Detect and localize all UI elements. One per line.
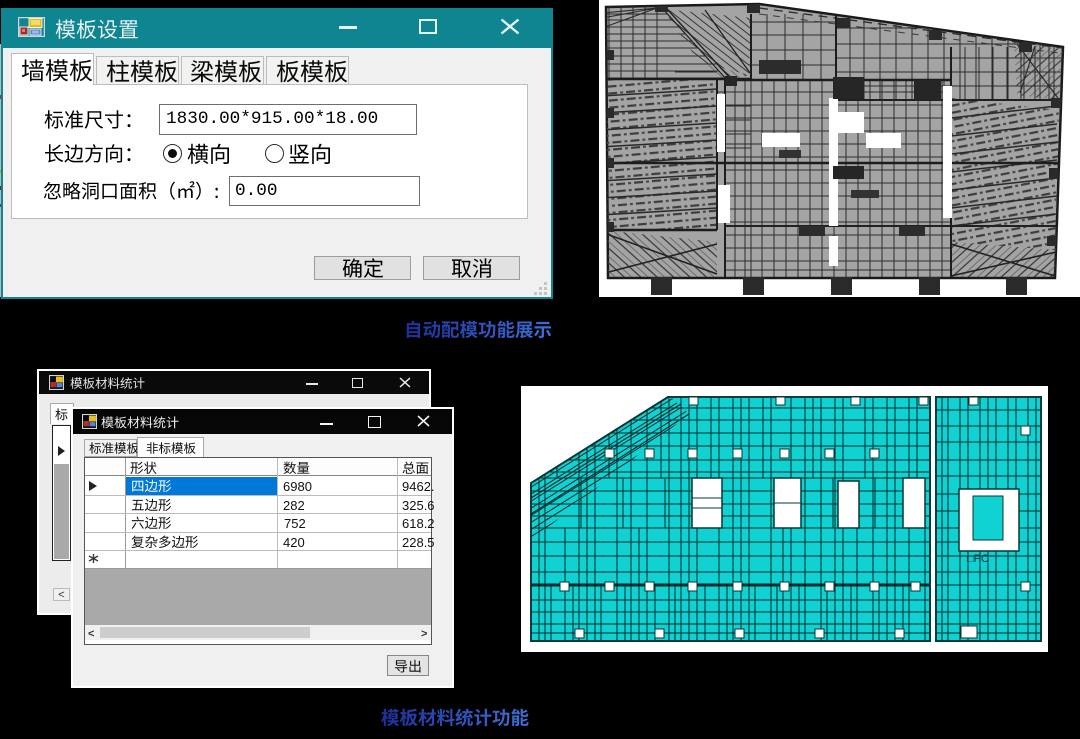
svg-text:□PC: □PC [967, 553, 989, 565]
